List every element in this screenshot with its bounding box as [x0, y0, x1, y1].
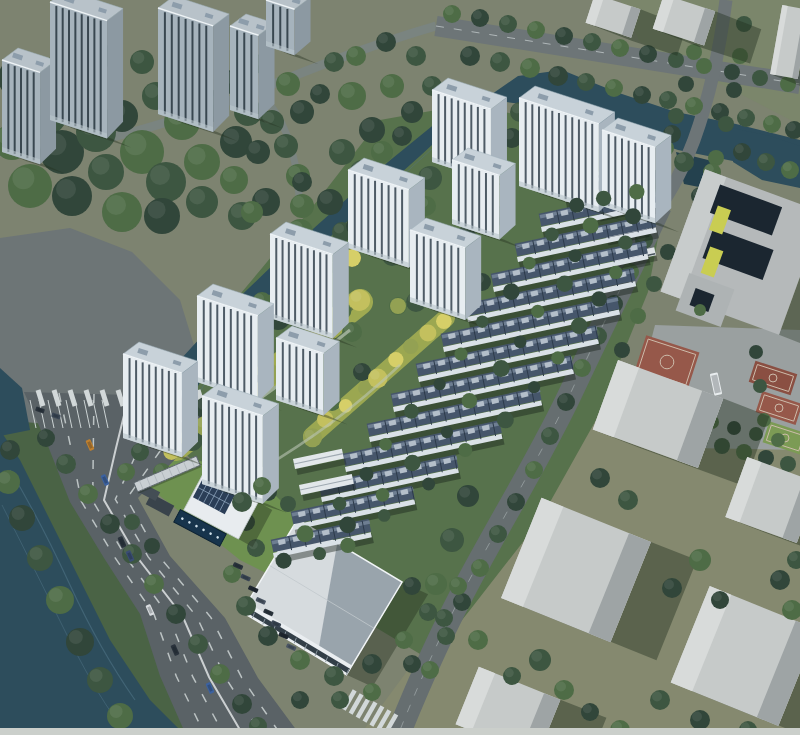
rendering-canvas — [0, 0, 800, 735]
image-edge-strip — [0, 728, 800, 735]
aerial-rendering: Bird's-eye 3D architectural rendering of… — [0, 0, 800, 735]
